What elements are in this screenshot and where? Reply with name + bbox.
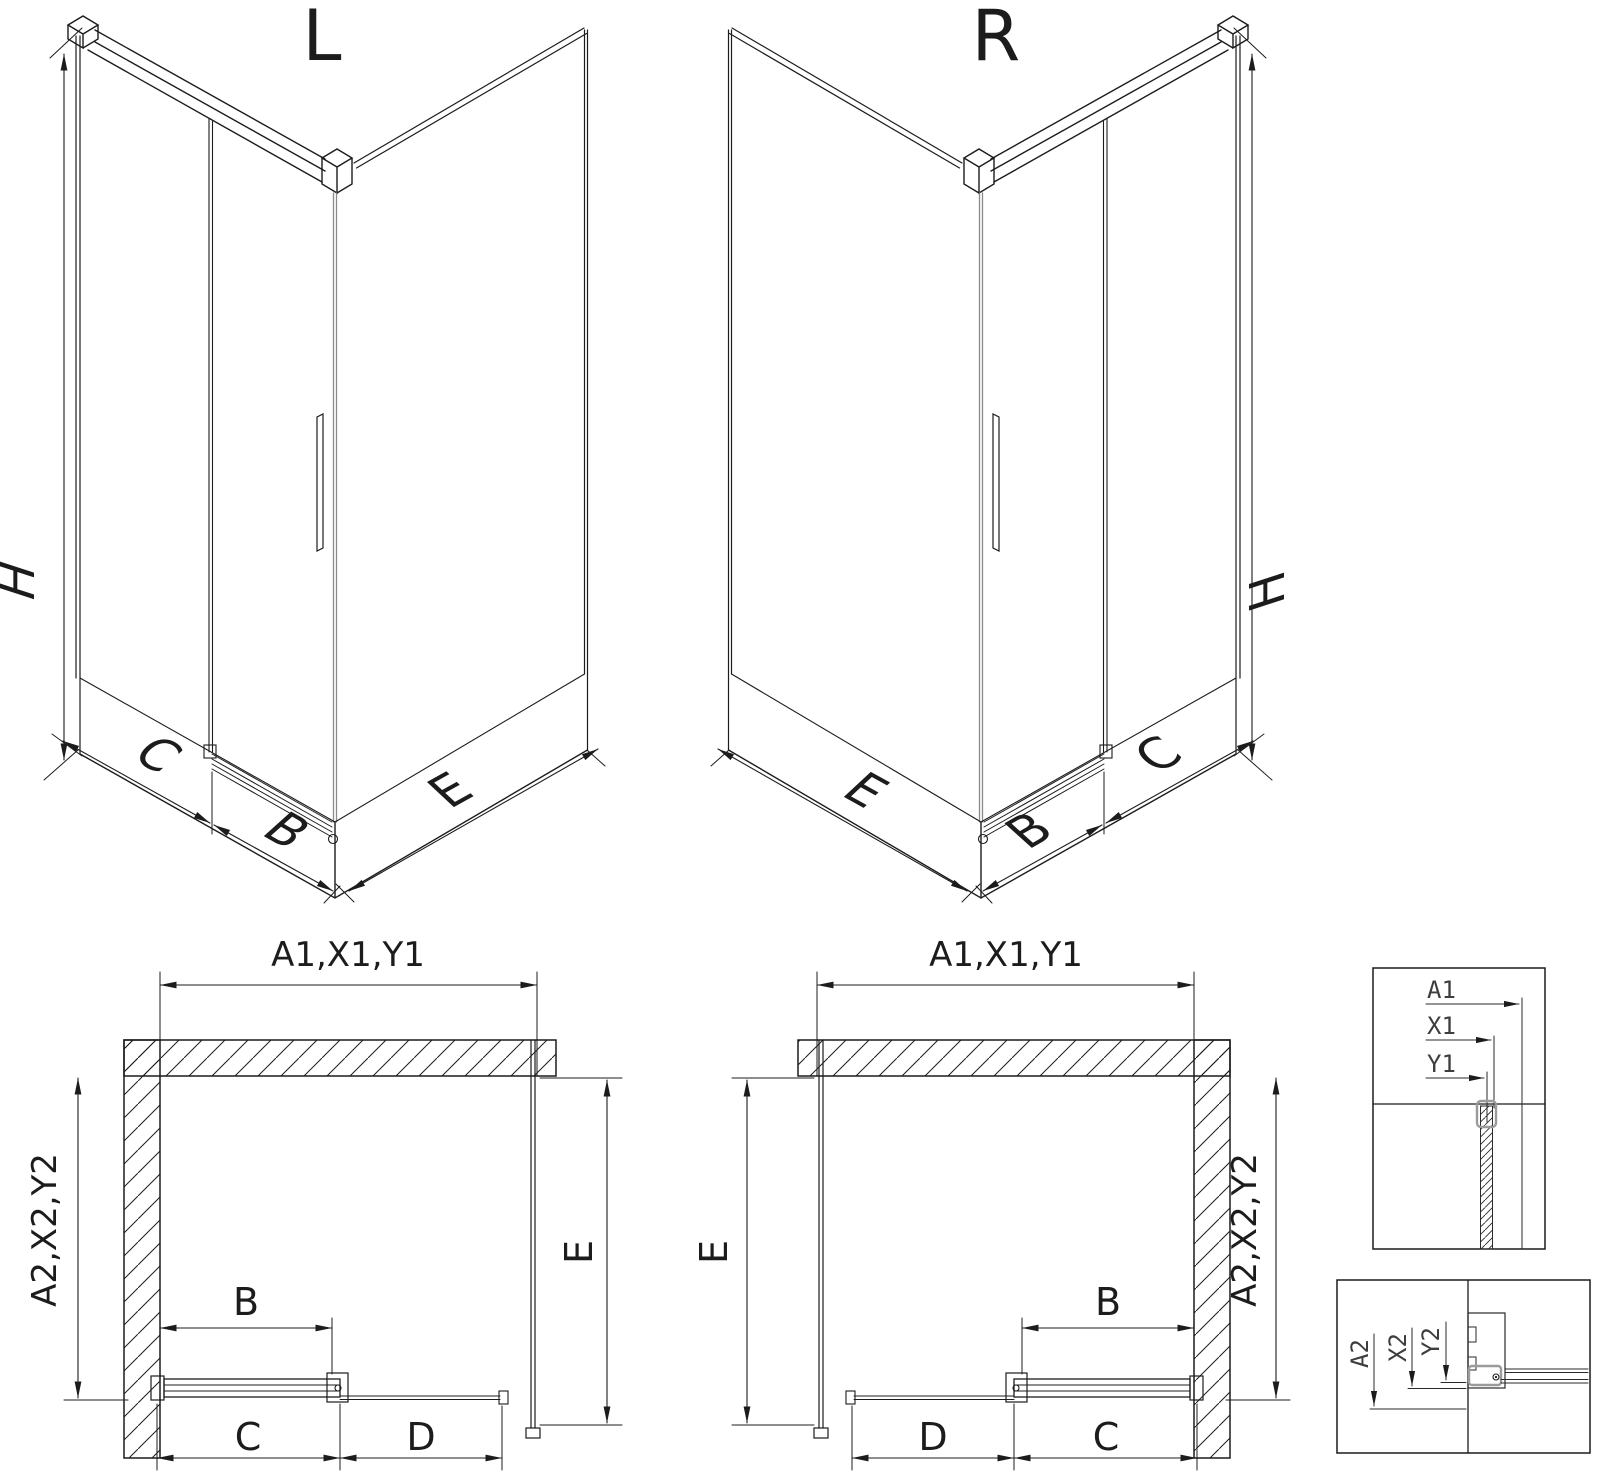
plan-left-side-wall [124,1040,160,1458]
detail-top-frame [1373,968,1545,1249]
technical-drawing-page: L H C B E R H E B C A1,X1,Y1 A2,X2,Y2 E … [0,0,1600,1474]
detail-bottom-label-a2: A2 [1346,1339,1374,1368]
plan-left-door-dim: B [233,1280,259,1324]
plan-right-top-dim: A1,X1,Y1 [929,935,1083,975]
plan-right-door-dim: B [1095,1280,1121,1324]
detail-top-label-y1: Y1 [1427,1050,1456,1078]
detail-bottom-section: A2 X2 Y2 [1337,1280,1590,1453]
plan-right-top-wall [798,1040,1230,1076]
iso-left-title: L [303,0,342,77]
plan-left-bottom-dim-1: C [235,1415,262,1459]
plan-view-right: A1,X1,Y1 E A2,X2,Y2 B D C [692,935,1290,1470]
iso-left-height-label: H [0,553,46,607]
iso-right-geometry [711,16,1272,903]
plan-left-return-dim: E [557,1240,601,1264]
iso-left-side-label: C [121,726,194,783]
iso-view-left: L H C B E [0,0,605,903]
iso-right-height-label: H [1239,564,1296,618]
iso-right-return-label: E [831,762,901,817]
plan-left-bottom-dim-2: D [406,1415,435,1459]
iso-left-return-label: E [415,762,485,817]
detail-bottom-notch-1 [1468,1327,1476,1342]
detail-top-section: A1 X1 Y1 [1373,968,1545,1249]
plan-right-wall-dim: A2,X2,Y2 [1225,1153,1265,1307]
detail-bottom-label-y2: Y2 [1417,1327,1445,1356]
detail-bottom-reference-lines [1370,1383,1466,1410]
iso-view-right: R H E B C [711,0,1296,903]
plan-right-bottom-dim-2: C [1093,1415,1120,1459]
iso-right-title: R [972,0,1021,77]
plan-right-bottom-dim-1: D [918,1415,947,1459]
detail-top-label-a1: A1 [1427,976,1456,1004]
detail-bottom-roller-pin [1495,1376,1497,1378]
plan-left-top-wall [124,1040,556,1076]
iso-right-side-label: C [1121,726,1194,783]
detail-bottom-frame [1337,1280,1590,1453]
plan-left-top-dim: A1,X1,Y1 [271,935,425,975]
plan-left-wall-dim: A2,X2,Y2 [25,1153,65,1307]
plan-right-return-dim: E [692,1240,736,1264]
detail-bottom-label-x2: X2 [1384,1333,1412,1362]
plan-view-left: A1,X1,Y1 A2,X2,Y2 E B C D [25,935,622,1470]
detail-top-label-x1: X1 [1427,1012,1456,1040]
detail-bottom-clamp [1469,1366,1501,1385]
shower-enclosure-diagram: L H C B E R H E B C A1,X1,Y1 A2,X2,Y2 E … [0,0,1600,1474]
iso-left-geometry [44,16,605,903]
